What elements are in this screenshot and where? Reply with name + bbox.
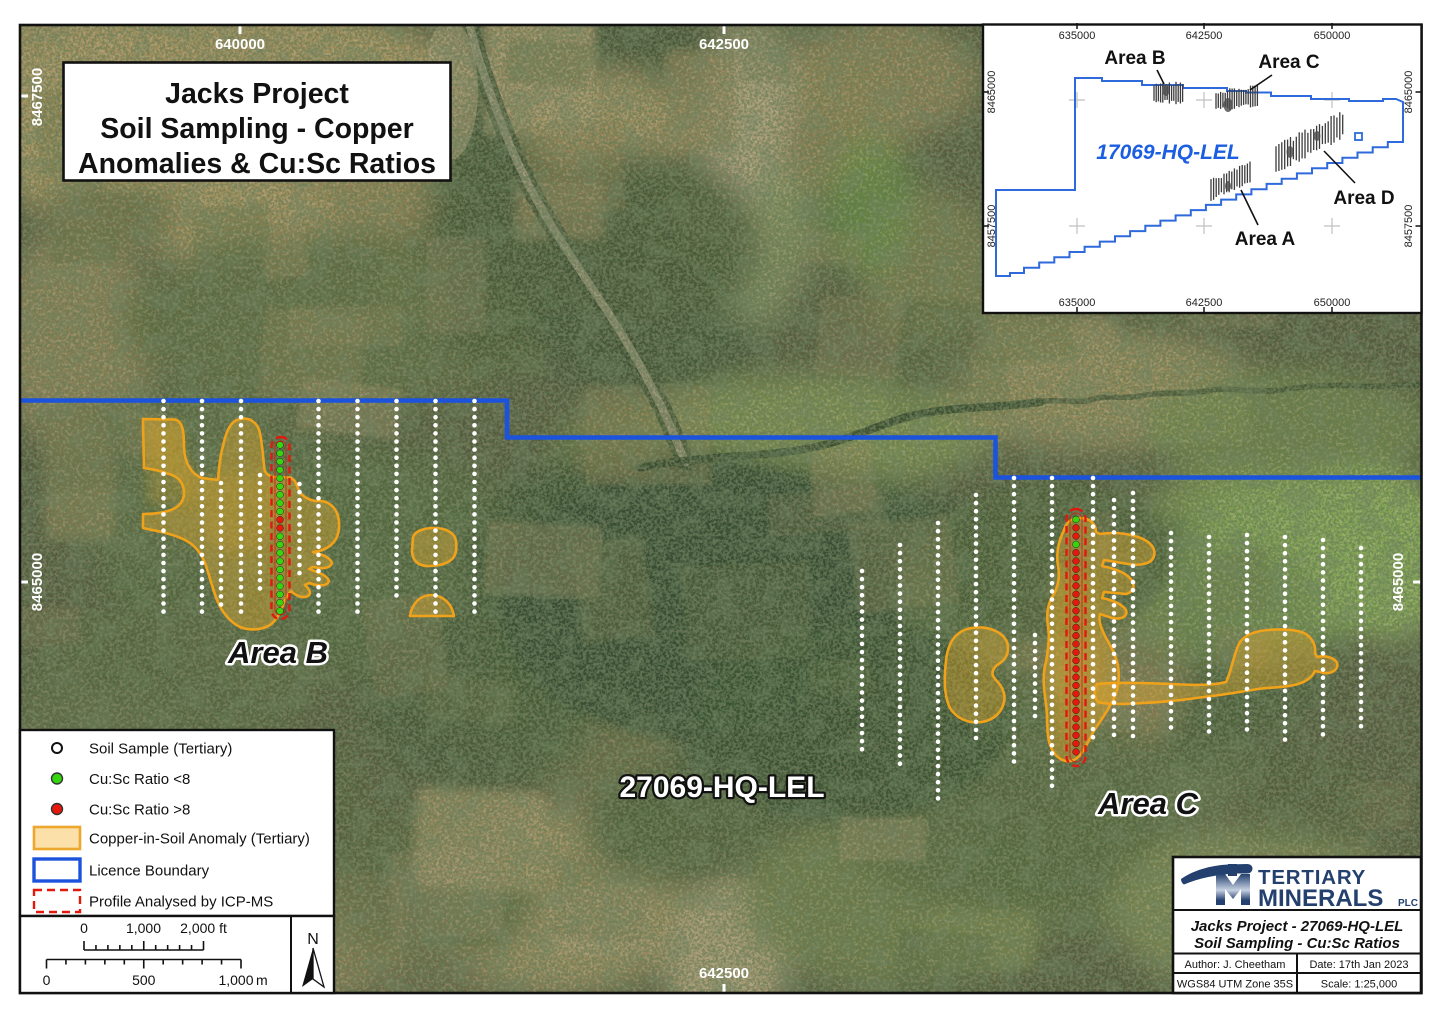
svg-text:1,000: 1,000 — [218, 972, 253, 988]
svg-text:Area C: Area C — [1097, 786, 1199, 821]
svg-text:500: 500 — [132, 972, 156, 988]
svg-text:Area B: Area B — [1104, 48, 1165, 69]
svg-text:642500: 642500 — [699, 36, 749, 53]
svg-text:17069-HQ-LEL: 17069-HQ-LEL — [1096, 141, 1240, 164]
svg-text:WGS84 UTM Zone 35S: WGS84 UTM Zone 35S — [1177, 979, 1293, 991]
svg-text:650000: 650000 — [1314, 30, 1351, 42]
svg-text:Soil Sample (Tertiary): Soil Sample (Tertiary) — [89, 741, 232, 758]
svg-text:650000: 650000 — [1314, 297, 1351, 309]
svg-text:8457500: 8457500 — [1403, 205, 1415, 248]
svg-text:0: 0 — [80, 920, 88, 936]
svg-text:Soil Sampling - Copper: Soil Sampling - Copper — [100, 113, 414, 145]
svg-text:Author: J. Cheetham: Author: J. Cheetham — [1185, 959, 1286, 971]
svg-text:642500: 642500 — [699, 965, 749, 982]
svg-text:1,000: 1,000 — [126, 920, 161, 936]
svg-text:Cu:Sc Ratio <8: Cu:Sc Ratio <8 — [89, 771, 190, 788]
svg-text:Profile Analysed by ICP-MS: Profile Analysed by ICP-MS — [89, 894, 273, 911]
svg-text:640000: 640000 — [215, 36, 265, 53]
svg-text:Cu:Sc Ratio >8: Cu:Sc Ratio >8 — [89, 802, 190, 819]
svg-text:Soil Sampling - Cu:Sc Ratios: Soil Sampling - Cu:Sc Ratios — [1194, 935, 1400, 952]
svg-text:642500: 642500 — [1186, 30, 1223, 42]
svg-text:0: 0 — [43, 972, 51, 988]
svg-text:642500: 642500 — [1186, 297, 1223, 309]
svg-text:Area D: Area D — [1333, 188, 1394, 209]
svg-text:Licence Boundary: Licence Boundary — [89, 863, 210, 880]
svg-text:Scale: 1:25,000: Scale: 1:25,000 — [1321, 979, 1397, 991]
svg-text:Date: 17th Jan 2023: Date: 17th Jan 2023 — [1309, 959, 1408, 971]
svg-text:635000: 635000 — [1059, 297, 1096, 309]
svg-text:8465000: 8465000 — [986, 71, 998, 114]
svg-text:Area B: Area B — [227, 635, 328, 670]
svg-text:Jacks Project - 27069-HQ-LEL: Jacks Project - 27069-HQ-LEL — [1191, 918, 1404, 935]
svg-text:Copper-in-Soil Anomaly (Tertia: Copper-in-Soil Anomaly (Tertiary) — [89, 831, 310, 848]
svg-text:Area C: Area C — [1258, 52, 1320, 73]
svg-text:m: m — [256, 972, 268, 988]
svg-text:635000: 635000 — [1059, 30, 1096, 42]
svg-text:8465000: 8465000 — [29, 553, 46, 611]
svg-text:Anomalies & Cu:Sc Ratios: Anomalies & Cu:Sc Ratios — [78, 148, 436, 180]
svg-text:27069-HQ-LEL: 27069-HQ-LEL — [619, 771, 824, 804]
svg-text:8465000: 8465000 — [1403, 71, 1415, 114]
svg-text:MINERALS: MINERALS — [1258, 885, 1383, 912]
svg-text:8457500: 8457500 — [986, 205, 998, 248]
svg-text:PLC: PLC — [1398, 898, 1418, 909]
svg-text:2,000 ft: 2,000 ft — [180, 920, 227, 936]
svg-text:Jacks Project: Jacks Project — [165, 78, 349, 110]
svg-text:8465000: 8465000 — [1390, 553, 1407, 611]
svg-text:Area A: Area A — [1235, 229, 1296, 250]
svg-text:8467500: 8467500 — [29, 68, 46, 126]
svg-text:N: N — [307, 931, 319, 948]
